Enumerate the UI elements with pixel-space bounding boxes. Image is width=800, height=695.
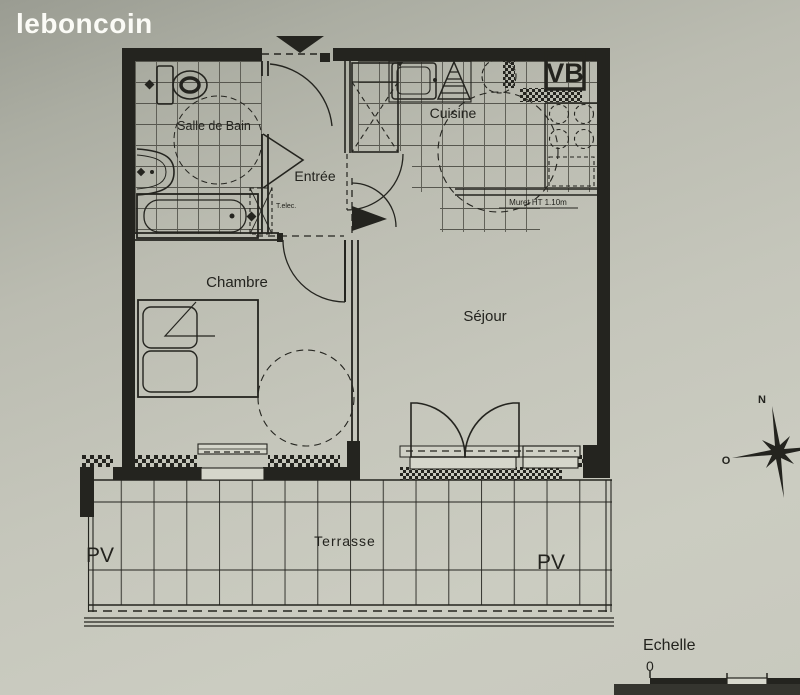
- vb-label: VB: [546, 58, 584, 88]
- muret-label: Muret HT 1.10m: [509, 198, 567, 207]
- room-label-kitchen: Cuisine: [430, 105, 477, 121]
- entrance-door: [262, 36, 333, 126]
- terrace-group: [84, 480, 614, 626]
- screenshot-stage: leboncoin: [0, 0, 800, 695]
- compass-rose: N O: [722, 394, 800, 498]
- room-label-living: Séjour: [463, 308, 506, 325]
- room-label-terrace: Terrasse: [314, 533, 376, 549]
- pv-left-label: PV: [86, 544, 114, 567]
- bed-icon: [138, 300, 258, 397]
- pv-right-label: PV: [537, 551, 565, 574]
- photo-edge-shadow: [614, 684, 800, 695]
- floor-plan-svg: Salle de Bain Entrée Cuisine Chambre Séj…: [0, 0, 800, 695]
- bedroom-window: [198, 444, 267, 480]
- room-label-bathroom: Salle de Bain: [177, 119, 251, 133]
- compass-west-label: O: [722, 455, 731, 467]
- turning-circle-bedroom: [258, 350, 354, 446]
- room-label-bedroom: Chambre: [206, 274, 268, 291]
- scale-bar: Echelle 0: [643, 637, 800, 687]
- tableau-electrique-label: T.elec.: [276, 203, 296, 210]
- scale-title: Echelle: [643, 637, 696, 654]
- compass-north-label: N: [758, 394, 766, 406]
- entrance-arrow-icon: [276, 36, 324, 53]
- bedroom-group: [138, 300, 354, 446]
- room-label-entry: Entrée: [294, 168, 335, 184]
